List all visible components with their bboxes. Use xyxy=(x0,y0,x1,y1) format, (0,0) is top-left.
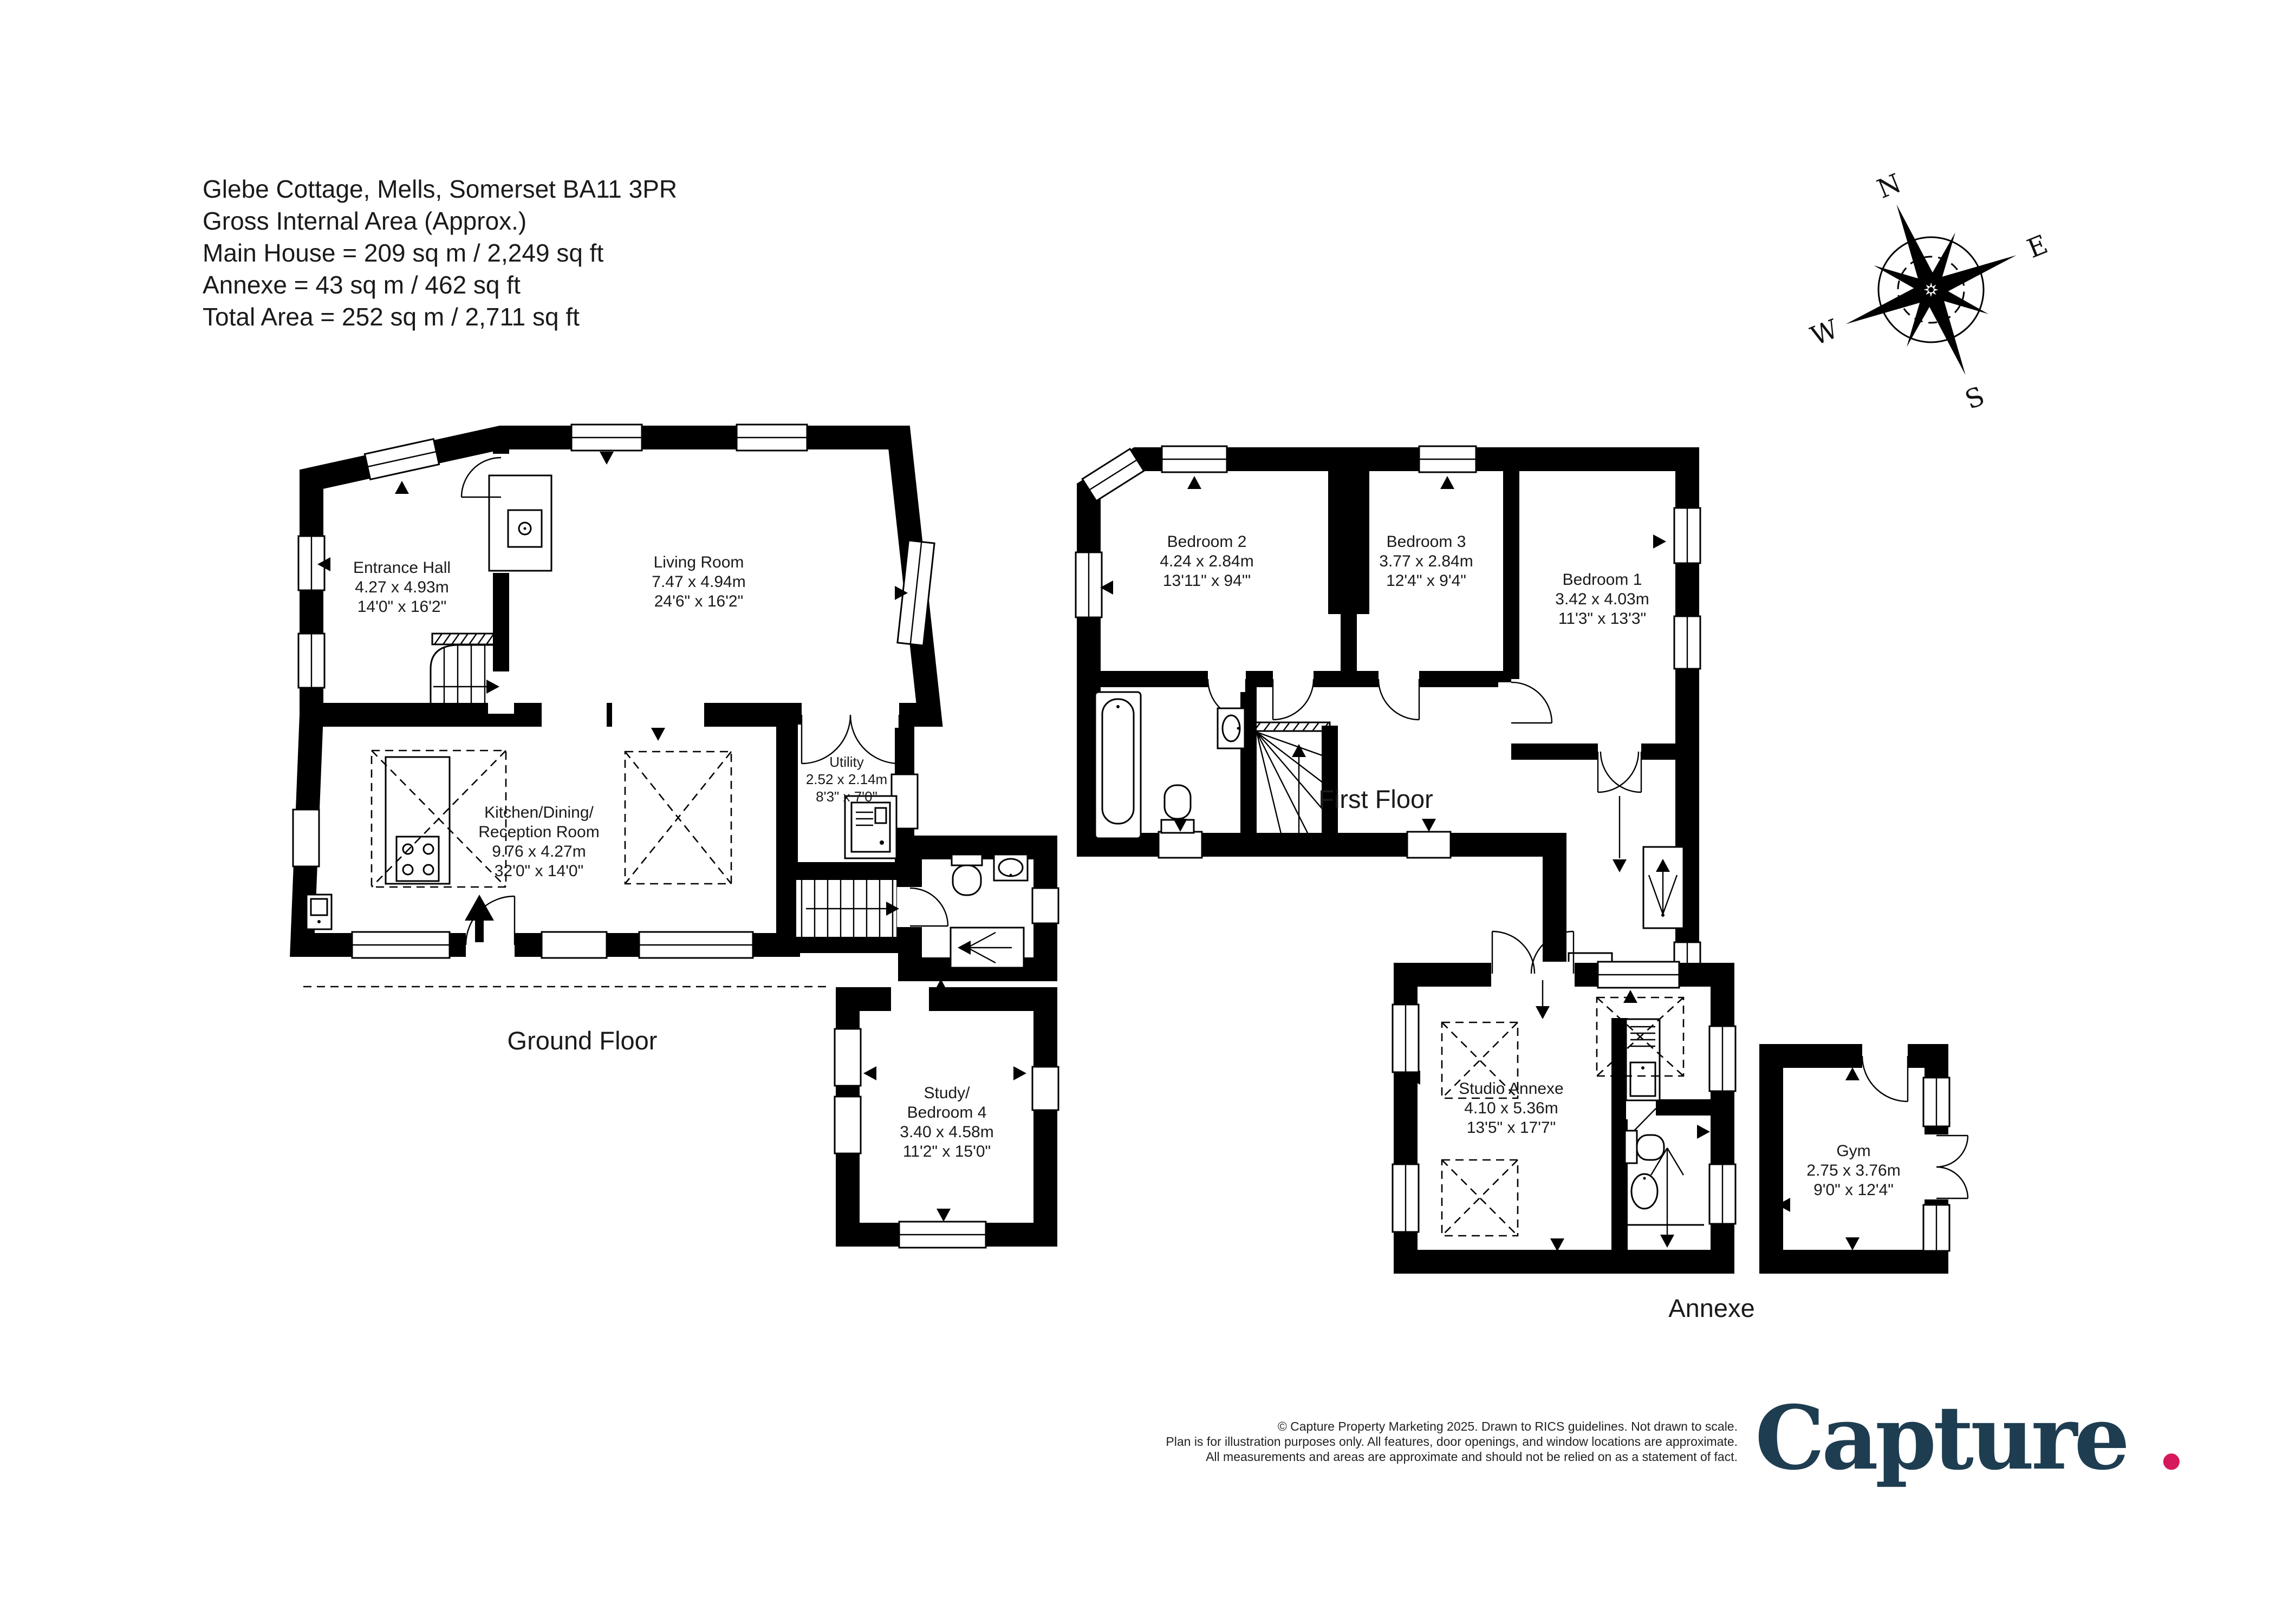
kitchen-metric: 9.76 x 4.27m xyxy=(492,843,586,860)
study-metric: 3.40 x 4.58m xyxy=(900,1123,993,1141)
studio-metric: 4.10 x 5.36m xyxy=(1464,1099,1558,1117)
compass-north: N xyxy=(1873,168,1906,205)
studio-name: Studio Annexe xyxy=(1459,1080,1564,1098)
address-line: Glebe Cottage, Mells, Somerset BA11 3PR xyxy=(203,175,677,203)
study-name2: Bedroom 4 xyxy=(907,1104,987,1121)
kitchenette-unit xyxy=(1626,1019,1660,1100)
ground-floor-plan: Entrance Hall 4.27 x 4.93m 14'0" x 16'2"… xyxy=(293,425,1058,1248)
bedroom1-name: Bedroom 1 xyxy=(1563,571,1642,589)
gross-internal-line: Gross Internal Area (Approx.) xyxy=(203,207,526,235)
kitchen-name2: Reception Room xyxy=(478,823,599,841)
wc-toilet xyxy=(952,855,982,895)
capture-logo-dot: . xyxy=(2156,1387,2183,1490)
gym-name: Gym xyxy=(1836,1142,1870,1160)
annexe-wc-sink xyxy=(1631,1174,1657,1209)
capture-logo: Capture . xyxy=(1755,1387,2183,1490)
first-floor-label: First Floor xyxy=(1318,785,1433,813)
entrance-hall-metric: 4.27 x 4.93m xyxy=(355,578,448,596)
compass-west: W xyxy=(1806,314,1843,352)
entrance-hall-imperial: 14'0" x 16'2" xyxy=(357,598,447,616)
disclaimer-line1: © Capture Property Marketing 2025. Drawn… xyxy=(1278,1419,1738,1433)
washing-machine xyxy=(845,796,896,858)
kitchen-imperial: 32'0" x 14'0" xyxy=(495,862,584,880)
header-text-block: Glebe Cottage, Mells, Somerset BA11 3PR … xyxy=(203,175,677,331)
ground-floor-label: Ground Floor xyxy=(508,1026,658,1055)
shower-cubicle xyxy=(951,928,1024,968)
compass-east: E xyxy=(2023,229,2052,264)
footer-disclaimer: © Capture Property Marketing 2025. Drawn… xyxy=(1166,1419,1738,1464)
gym-imperial: 9'0" x 12'4" xyxy=(1813,1181,1894,1199)
disclaimer-line2: Plan is for illustration purposes only. … xyxy=(1166,1434,1738,1449)
bedroom2-metric: 4.24 x 2.84m xyxy=(1160,552,1253,570)
ensuite-shower xyxy=(1643,847,1683,928)
annexe-area-line: Annexe = 43 sq m / 462 sq ft xyxy=(203,271,521,299)
study-name: Study/ xyxy=(924,1084,970,1102)
entrance-hall-name: Entrance Hall xyxy=(353,559,451,577)
main-house-line: Main House = 209 sq m / 2,249 sq ft xyxy=(203,239,603,267)
kitchen-name: Kitchen/Dining/ xyxy=(484,804,594,821)
studio-annexe-walls xyxy=(1406,975,1722,1262)
kitchen-appliance xyxy=(307,895,331,929)
bedroom1-metric: 3.42 x 4.03m xyxy=(1555,590,1649,608)
compass-rose-icon: N E S W xyxy=(1765,126,2096,460)
utility-metric: 2.52 x 2.14m xyxy=(806,771,887,787)
disclaimer-line3: All measurements and areas are approxima… xyxy=(1206,1450,1738,1464)
annexe-label: Annexe xyxy=(1668,1294,1754,1322)
bathroom-sink xyxy=(1218,708,1245,748)
living-room-imperial: 24'6" x 16'2" xyxy=(654,592,744,610)
annexe-plan: Studio Annexe 4.10 x 5.36m 13'5" x 17'7"… xyxy=(1393,931,1968,1322)
living-room-metric: 7.47 x 4.94m xyxy=(652,573,745,591)
utility-imperial: 8'3" x 7'0" xyxy=(816,788,877,805)
bedroom3-metric: 3.77 x 2.84m xyxy=(1379,552,1473,570)
bedroom1-imperial: 11'3" x 13'3" xyxy=(1558,610,1646,628)
living-room-name: Living Room xyxy=(654,553,744,571)
compass-south: S xyxy=(1961,381,1988,415)
wc-sink xyxy=(994,855,1028,881)
bedroom2-name: Bedroom 2 xyxy=(1167,533,1247,551)
bathtub xyxy=(1095,692,1141,838)
utility-name: Utility xyxy=(829,754,864,770)
capture-logo-text: Capture xyxy=(1755,1387,2127,1490)
bedroom3-imperial: 12'4" x 9'4" xyxy=(1386,572,1466,590)
bedroom3-name: Bedroom 3 xyxy=(1387,533,1466,551)
floorplan-page: Glebe Cottage, Mells, Somerset BA11 3PR … xyxy=(0,0,2269,1624)
study-imperial: 11'2" x 15'0" xyxy=(903,1143,991,1160)
total-area-line: Total Area = 252 sq m / 2,711 sq ft xyxy=(203,303,580,331)
bedroom2-imperial: 13'11" x 94'" xyxy=(1163,572,1251,590)
studio-imperial: 13'5" x 17'7" xyxy=(1467,1119,1556,1137)
annexe-wc-toilet xyxy=(1625,1131,1664,1163)
gym-metric: 2.75 x 3.76m xyxy=(1806,1162,1900,1179)
